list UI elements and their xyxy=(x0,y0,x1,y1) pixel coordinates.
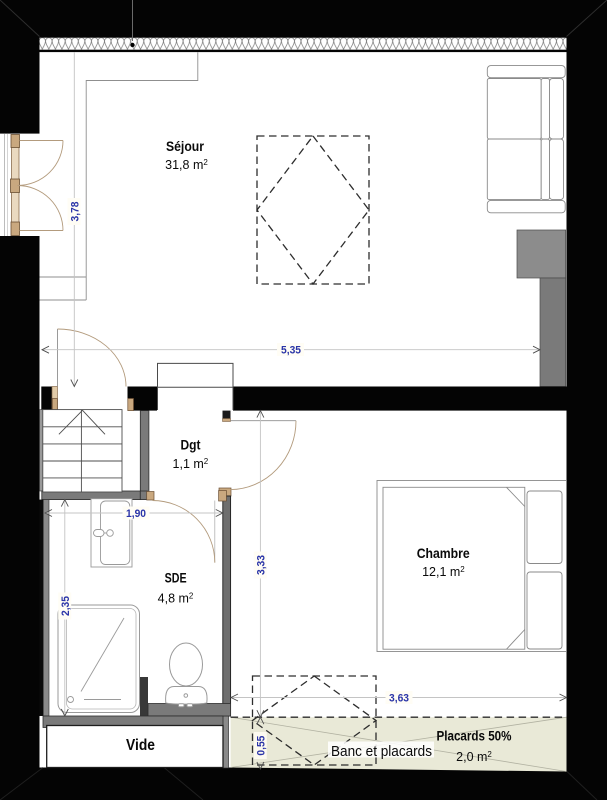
svg-text:5,35: 5,35 xyxy=(281,345,301,357)
svg-text:Dgt: Dgt xyxy=(181,438,201,453)
svg-text:2,35: 2,35 xyxy=(60,596,72,616)
svg-text:Vide: Vide xyxy=(126,737,155,754)
svg-text:Séjour: Séjour xyxy=(166,138,204,154)
svg-text:3,63: 3,63 xyxy=(389,693,409,705)
svg-text:SDE: SDE xyxy=(165,571,187,586)
svg-text:2,0 m2: 2,0 m2 xyxy=(456,750,492,764)
svg-text:Banc et placards: Banc et placards xyxy=(331,743,432,760)
svg-text:3,33: 3,33 xyxy=(256,555,268,575)
svg-text:Placards 50%: Placards 50% xyxy=(437,729,512,744)
svg-text:31,8 m2: 31,8 m2 xyxy=(165,158,208,172)
svg-text:Chambre: Chambre xyxy=(417,546,470,561)
svg-text:1,1 m2: 1,1 m2 xyxy=(173,457,209,471)
svg-text:0,55: 0,55 xyxy=(256,736,268,756)
svg-text:3,78: 3,78 xyxy=(70,202,82,222)
svg-text:12,1 m2: 12,1 m2 xyxy=(422,565,465,579)
svg-text:4,8 m2: 4,8 m2 xyxy=(158,591,194,605)
svg-text:1,90: 1,90 xyxy=(126,508,146,520)
